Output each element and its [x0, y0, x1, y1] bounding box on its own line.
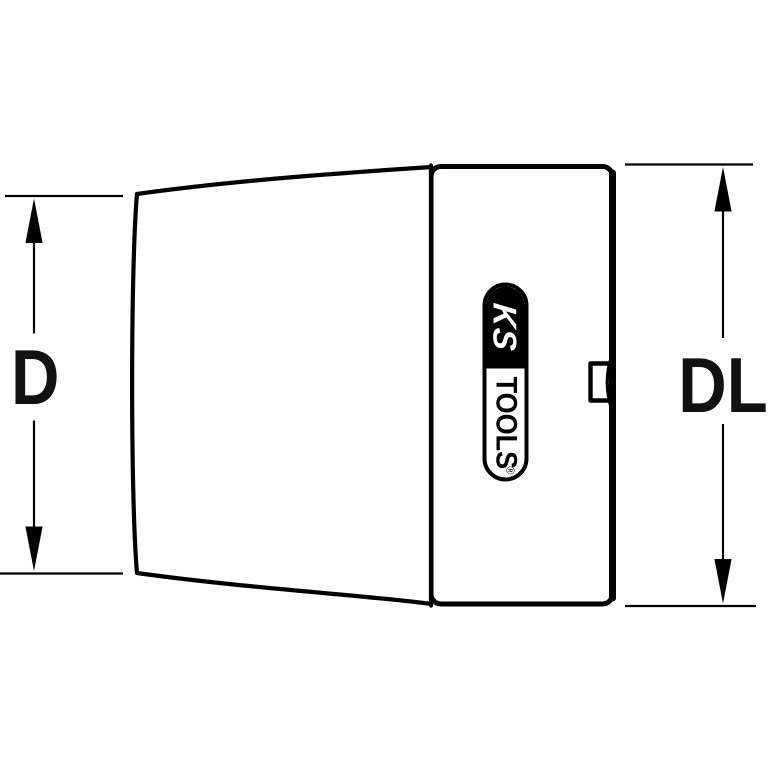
dimension-label-dl: DL: [653, 346, 772, 424]
brand-logo-ks-text: KS: [489, 302, 522, 353]
socket-nose-outline: [132, 167, 431, 604]
brand-logo-tools-text: TOOLS: [491, 377, 521, 470]
brand-logo-tools-section: TOOLS: [487, 369, 525, 478]
dimension-label-dl-text: DL: [678, 346, 767, 424]
brand-logo: KS TOOLS ®: [483, 283, 529, 482]
arrowhead-dl-down-icon: [714, 559, 731, 604]
registered-trademark-icon: ®: [504, 466, 515, 474]
dimension-label-d-text: D: [11, 338, 59, 416]
arrowhead-d-down-icon: [25, 527, 42, 572]
arrowhead-dl-up-icon: [714, 167, 731, 212]
brand-logo-pill: KS TOOLS ®: [483, 283, 529, 482]
brand-logo-ks-section: KS: [487, 287, 525, 369]
diagram-canvas: D DL KS TOOLS ®: [0, 0, 772, 772]
arrowhead-d-up-icon: [25, 199, 42, 244]
dimension-label-d: D: [0, 338, 85, 416]
